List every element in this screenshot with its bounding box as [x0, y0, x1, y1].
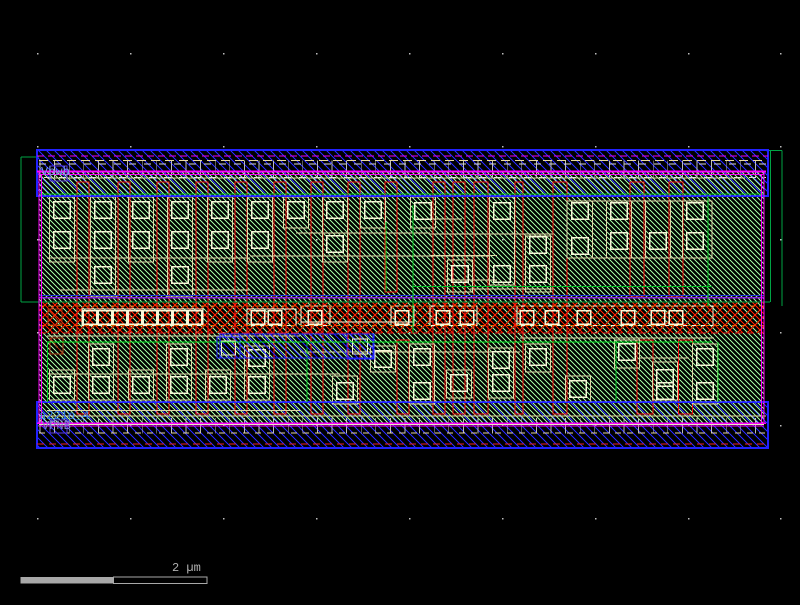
svg-text:VPNB: VPNB [42, 419, 71, 433]
svg-text:2 µm: 2 µm [172, 561, 201, 575]
svg-text:Vbwb: Vbwb [41, 165, 70, 179]
